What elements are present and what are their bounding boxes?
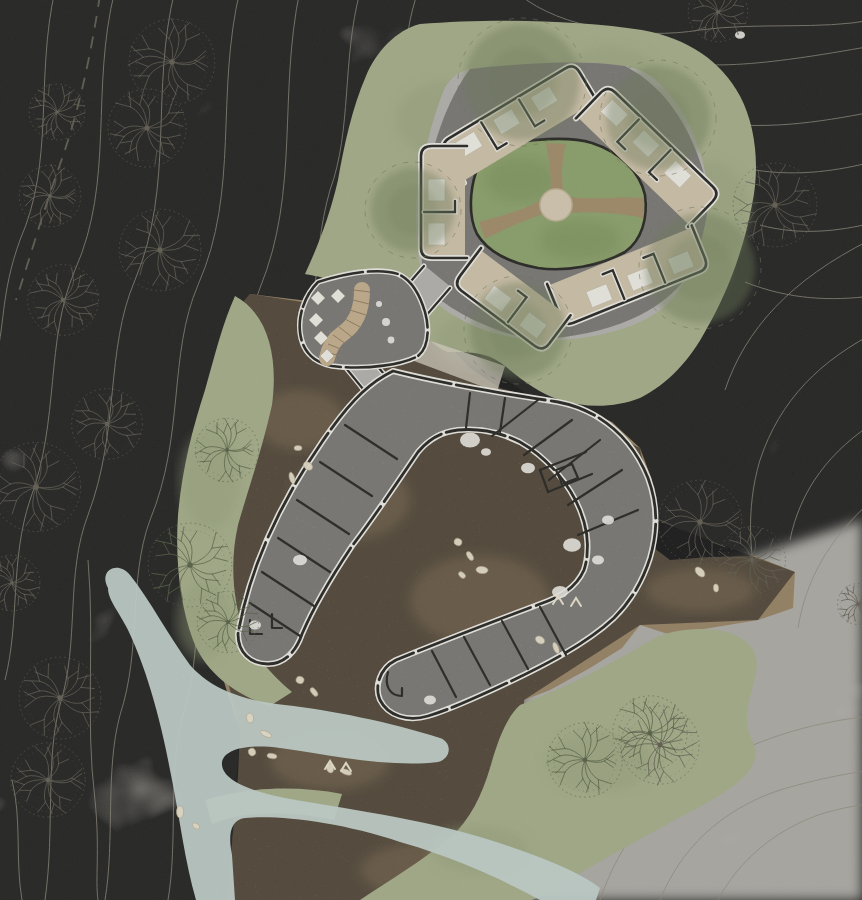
building-feature [293,555,307,566]
site-plan-page: Architectural site plan — hillside resor… [0,0,862,900]
building-feature [521,463,535,474]
building-feature [602,516,614,525]
pebble [713,584,719,592]
building-feature [563,538,581,552]
courtyard-plaza [540,189,572,221]
pebble [294,445,302,450]
site-plan-map: Architectural site plan — hillside resor… [0,0,862,900]
dining-pavilion [300,271,428,367]
building-feature [460,433,480,448]
building-feature [481,448,491,456]
pebble [176,806,183,818]
building-feature [592,556,604,565]
building-feature [552,586,568,598]
building-feature [735,31,745,39]
building-feature [424,696,436,705]
